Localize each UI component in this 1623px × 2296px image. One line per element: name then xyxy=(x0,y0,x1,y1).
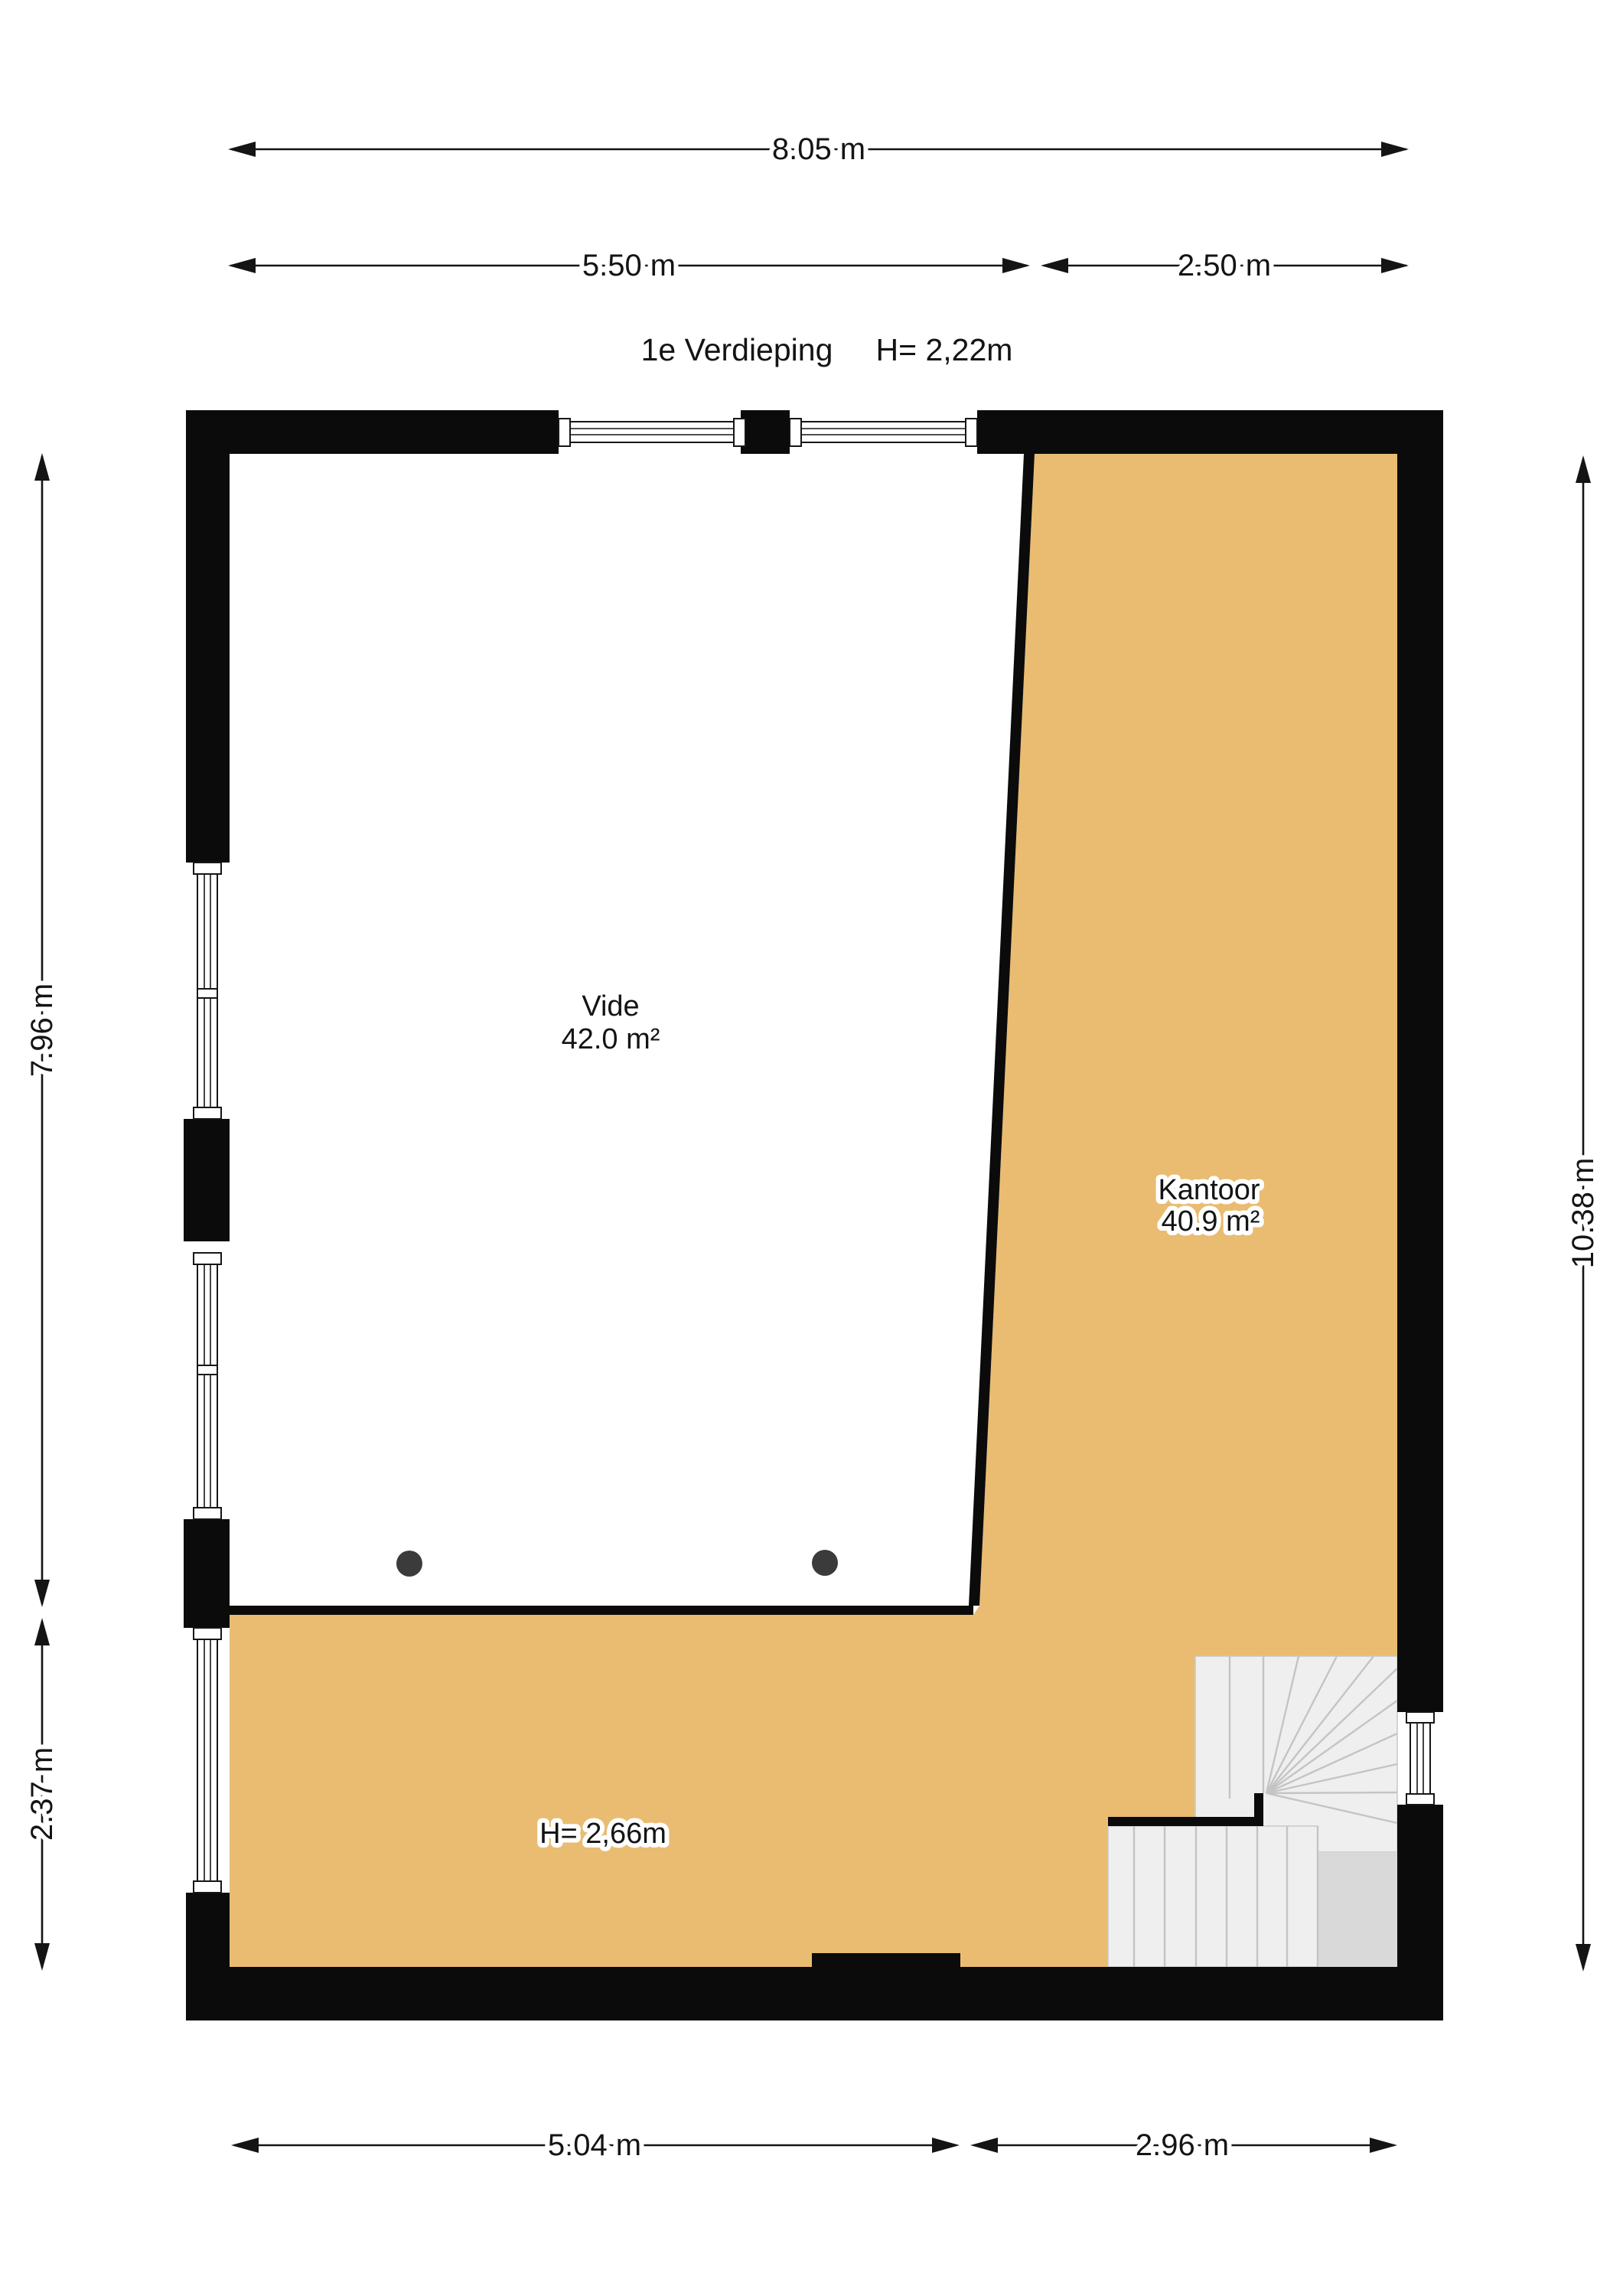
wall-top-left xyxy=(186,410,559,454)
vide-bottom-boundary-line xyxy=(230,1606,973,1615)
dim-label-bottom-left: 5.04 m xyxy=(548,2128,641,2162)
window-end-cap xyxy=(194,1508,221,1519)
dim-arrow xyxy=(1381,142,1409,157)
wall-left-pier-1 xyxy=(184,1119,230,1241)
dim-label-top-total: 8.05 m xyxy=(772,132,865,166)
dim-label-top-right: 2.50 m xyxy=(1178,249,1271,282)
room-area: 42.0 m² xyxy=(562,1023,660,1055)
floorplan-page: 8.05 m 5.50 m 2.50 m 7.96 m 2.37 m 10.38… xyxy=(0,0,1623,2296)
floor-height-label: H= 2,22m xyxy=(876,332,1013,367)
window-end-cap xyxy=(734,419,745,446)
dim-arrow xyxy=(1576,1944,1591,1971)
window-end-cap xyxy=(194,1253,221,1264)
lower-area-height-label: H= 2,66m xyxy=(539,1818,666,1850)
stair-fan-line xyxy=(1266,1792,1397,1793)
room-area: 40.9 m² xyxy=(1162,1205,1260,1238)
dim-arrow xyxy=(1381,258,1409,273)
window-end-cap xyxy=(194,863,221,874)
wall-top-right xyxy=(977,410,1443,454)
stair-divider-post xyxy=(1254,1793,1263,1826)
window-frame xyxy=(790,422,977,442)
dim-arrow xyxy=(34,1580,50,1607)
wall-bottom-tab xyxy=(812,1953,960,1976)
room-label-kantoor: Kantoor 40.9 m² xyxy=(1158,1174,1260,1238)
window-frame xyxy=(197,1628,217,1893)
window-end-cap xyxy=(559,419,570,446)
window-left-3 xyxy=(194,1628,221,1893)
stair-landing xyxy=(1318,1852,1397,1967)
window-mid-tick xyxy=(197,1365,217,1375)
dim-arrow xyxy=(231,2138,259,2153)
window-frame xyxy=(1410,1712,1430,1805)
dim-arrow xyxy=(34,453,50,481)
room-name: Vide xyxy=(582,990,639,1022)
window-end-cap xyxy=(194,1628,221,1639)
dim-label-left-lower: 2.37 m xyxy=(25,1747,59,1841)
window-left-1 xyxy=(194,863,221,1119)
window-top-2 xyxy=(790,419,977,446)
dim-arrow xyxy=(932,2138,960,2153)
dim-arrow xyxy=(1576,455,1591,483)
window-end-cap xyxy=(966,419,977,446)
window-end-cap xyxy=(194,1881,221,1893)
window-frame xyxy=(197,1253,217,1519)
room-name: Kantoor xyxy=(1158,1174,1260,1206)
dim-label-left-upper: 7.96 m xyxy=(25,983,59,1077)
window-top-1 xyxy=(559,419,745,446)
column-dot xyxy=(396,1551,422,1577)
dim-arrow xyxy=(228,142,256,157)
dim-label-top-left: 5.50 m xyxy=(582,249,676,282)
window-end-cap xyxy=(194,1107,221,1119)
dim-arrow xyxy=(970,2138,998,2153)
column-dot xyxy=(812,1550,838,1576)
dim-arrow xyxy=(1002,258,1030,273)
window-end-cap xyxy=(1406,1712,1434,1723)
dim-arrow xyxy=(34,1943,50,1971)
dim-arrow xyxy=(1041,258,1068,273)
window-frame xyxy=(559,422,745,442)
window-right xyxy=(1406,1712,1434,1805)
window-mid-tick xyxy=(197,989,217,998)
floor-title: 1e Verdieping xyxy=(641,332,833,367)
window-end-cap xyxy=(1406,1794,1434,1805)
room-label-vide: Vide 42.0 m² xyxy=(562,990,660,1055)
dim-arrow xyxy=(1370,2138,1397,2153)
wall-right-upper xyxy=(1397,410,1443,1712)
window-end-cap xyxy=(790,419,801,446)
dim-label-bottom-right: 2.96 m xyxy=(1136,2128,1229,2162)
floor-plan-svg: 8.05 m 5.50 m 2.50 m 7.96 m 2.37 m 10.38… xyxy=(0,0,1623,2296)
window-left-2 xyxy=(194,1253,221,1519)
dim-arrow xyxy=(34,1618,50,1645)
stair-divider-horizontal xyxy=(1108,1817,1263,1826)
dim-arrow xyxy=(228,258,256,273)
wall-left-pier-2 xyxy=(184,1519,230,1628)
wall-top-post xyxy=(741,410,790,454)
dim-label-right-total: 10.38 m xyxy=(1566,1158,1600,1269)
wall-left-upper xyxy=(186,410,230,863)
